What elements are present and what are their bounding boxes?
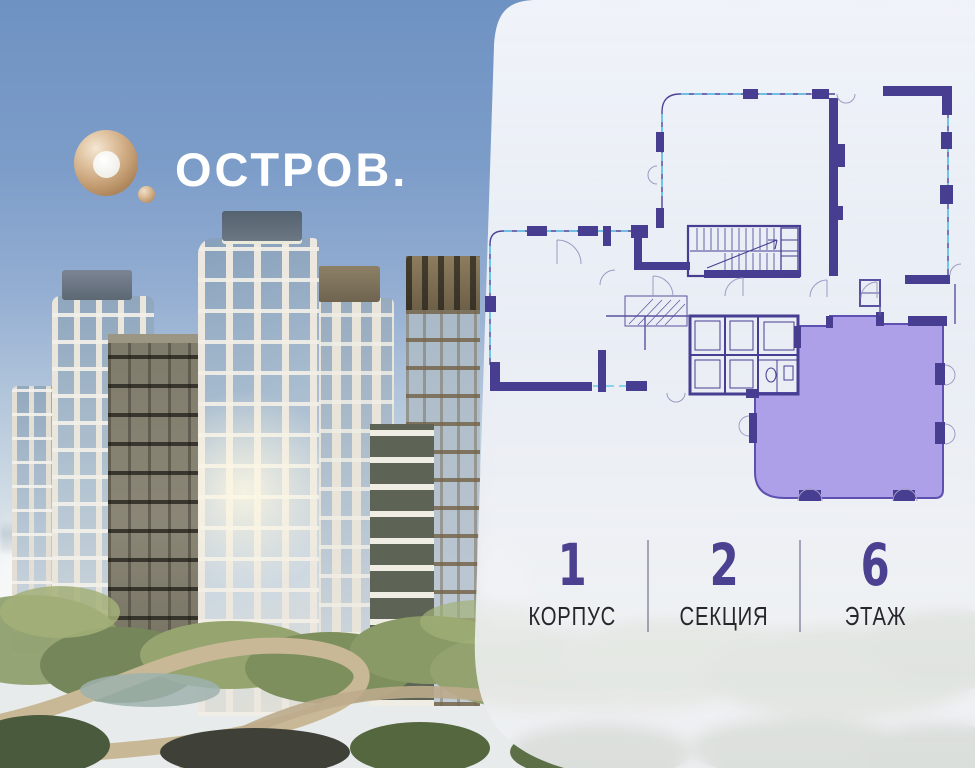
stat-section: 2 СЕКЦИЯ	[649, 536, 798, 640]
stats-row: 1 КОРПУС 2 СЕКЦИЯ 6 ЭТАЖ	[498, 536, 950, 640]
ostrov-dot-icon	[138, 186, 155, 203]
floor-plan	[485, 78, 975, 530]
real-estate-card: { "logo": { "text": "ОСТРОВ." }, "panel"…	[0, 0, 975, 768]
logo-text: ОСТРОВ.	[175, 146, 408, 193]
floor-label: ЭТАЖ	[844, 601, 906, 632]
building-number: 1	[558, 536, 587, 594]
section-number: 2	[709, 536, 738, 594]
section-label: СЕКЦИЯ	[680, 601, 769, 632]
building-label: КОРПУС	[529, 601, 617, 632]
elevator-block	[690, 316, 798, 394]
stat-floor: 6 ЭТАЖ	[801, 536, 950, 640]
ostrov-sphere-icon	[74, 130, 138, 196]
floor-number: 6	[861, 536, 890, 594]
logo: ОСТРОВ.	[62, 126, 442, 216]
staircase	[688, 226, 800, 276]
stat-building: 1 КОРПУС	[498, 536, 647, 640]
highlighted-apartment[interactable]	[755, 316, 943, 498]
